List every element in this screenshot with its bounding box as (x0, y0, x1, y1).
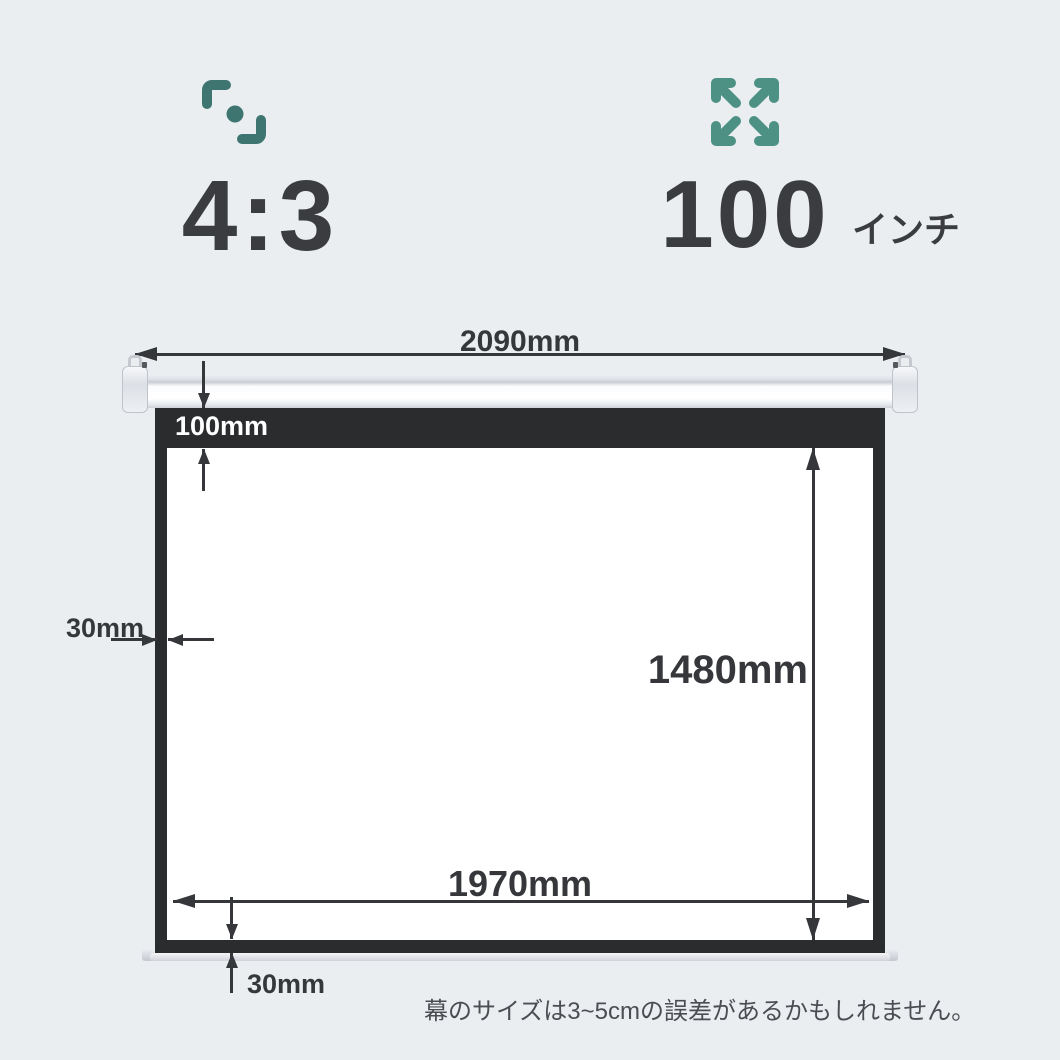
dim-label-viewing-height: 1480mm (560, 650, 808, 690)
aspect-ratio-value: 4:3 (140, 166, 380, 266)
dim-arrow-side-border-inner (168, 638, 214, 641)
aspect-ratio-icon (198, 76, 270, 148)
roller-end-cap-left (122, 366, 148, 413)
dim-arrow-top-border-down (202, 361, 205, 408)
dim-arrow-side-border-outer (111, 638, 157, 641)
dim-label-viewing-width: 1970mm (420, 866, 620, 902)
dim-label-bottom-border: 30mm (247, 971, 325, 998)
product-infographic: 4:3 100 インチ 2090mm 100mm 30mm 1480mm 197… (0, 0, 1060, 1060)
roller-end-cap-right (892, 366, 918, 413)
dim-arrow-bottom-border-up (230, 953, 233, 993)
dim-arrow-viewing-width (173, 900, 869, 903)
roller-pin-left (142, 362, 147, 368)
dim-arrow-viewing-height (812, 448, 815, 940)
dim-arrow-bottom-border-down (230, 897, 233, 939)
dim-label-top-border: 100mm (175, 413, 268, 440)
size-tolerance-note: 幕のサイズは3~5cmの誤差があるかもしれません。 (424, 999, 975, 1025)
dim-arrow-total-width (135, 353, 905, 356)
expand-arrows-icon (703, 70, 787, 154)
screen-size-unit: インチ (852, 212, 960, 248)
dim-arrow-top-border-up (202, 449, 205, 491)
roller-pin-right (893, 362, 898, 368)
weight-bar (150, 953, 890, 961)
screen-size-value: 100 (640, 167, 850, 263)
roller-bar (140, 374, 900, 408)
